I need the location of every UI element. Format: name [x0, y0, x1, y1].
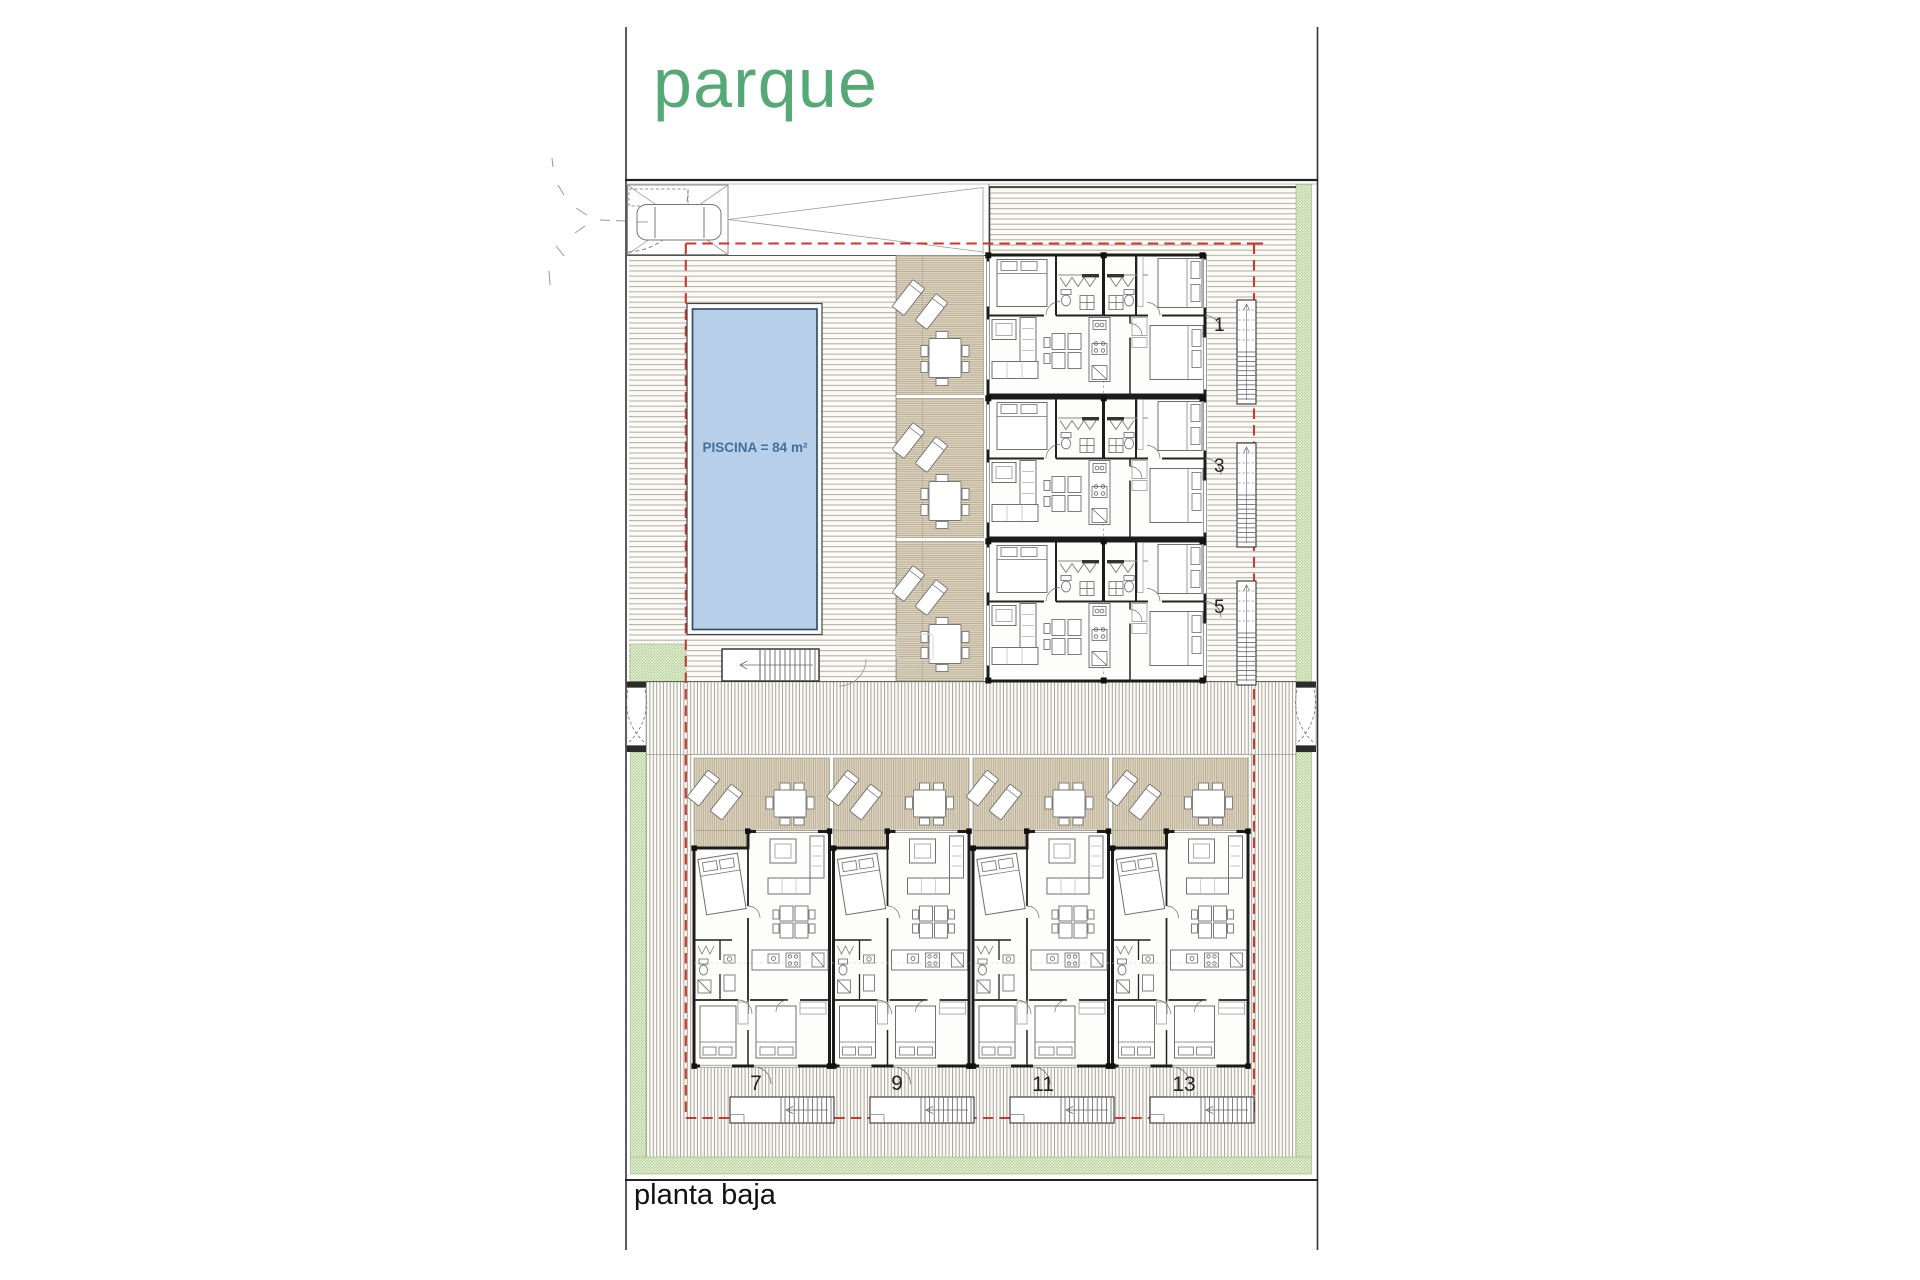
svg-text:7: 7 [750, 1072, 762, 1095]
svg-text:3: 3 [1214, 456, 1225, 477]
svg-text:PISCINA = 84 m²: PISCINA = 84 m² [703, 440, 808, 455]
svg-text:ANGULARIS: ANGULARIS [887, 664, 942, 673]
svg-text:5: 5 [1214, 597, 1225, 618]
svg-text:planta baja: planta baja [634, 1179, 777, 1211]
svg-text:9: 9 [891, 1072, 903, 1095]
svg-text:11: 11 [1032, 1073, 1054, 1096]
svg-text:13: 13 [1172, 1073, 1195, 1096]
svg-text:1: 1 [1214, 315, 1225, 336]
svg-text:parque: parque [653, 44, 878, 122]
